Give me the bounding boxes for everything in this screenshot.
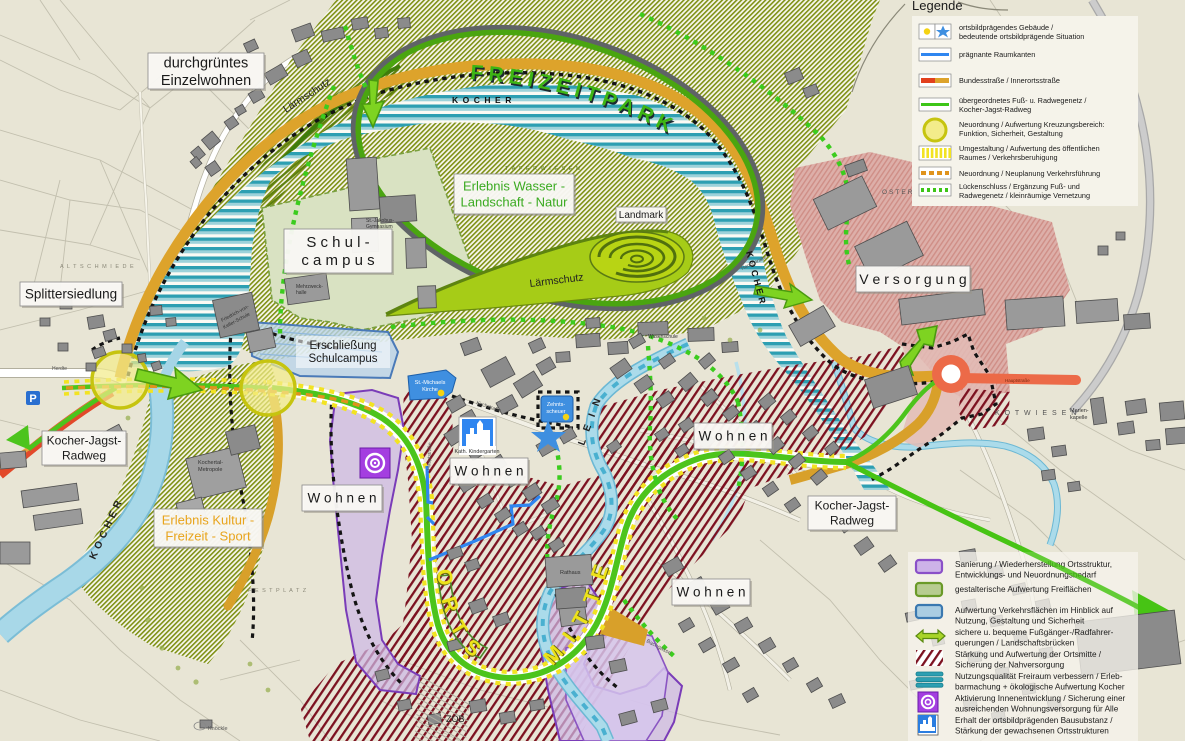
svg-text:St.-Michaels: St.-Michaels [415, 380, 446, 386]
svg-text:Knöckle: Knöckle [208, 726, 228, 732]
svg-text:Metropole: Metropole [198, 467, 222, 473]
svg-text:T Ä F E R W I E S E N: T Ä F E R W I E S E N [505, 165, 581, 172]
svg-text:Erlebnis Wasser -: Erlebnis Wasser - [463, 179, 565, 194]
svg-text:sichere u. bequeme Fußgänger-/: sichere u. bequeme Fußgänger-/Radfahrer- [955, 628, 1114, 637]
svg-text:S c h u l -: S c h u l - [306, 234, 369, 251]
svg-text:prägnante Raumkanten: prägnante Raumkanten [959, 50, 1035, 59]
svg-text:Legende: Legende [912, 0, 963, 13]
svg-text:Einzelwohnen: Einzelwohnen [161, 73, 251, 89]
svg-text:Lückenschluss / Ergänzung Fuß-: Lückenschluss / Ergänzung Fuß- und [959, 182, 1080, 191]
svg-text:Marien-: Marien- [1070, 408, 1089, 414]
svg-text:übergeordnetes Fuß- u. Radwege: übergeordnetes Fuß- u. Radwegenetz / [959, 96, 1087, 105]
svg-text:W o h n e n: W o h n e n [307, 491, 376, 506]
svg-text:barmachung + ökologische Aufwe: barmachung + ökologische Aufwertung Koch… [955, 682, 1125, 691]
svg-text:Umgestaltung / Aufwertung des: Umgestaltung / Aufwertung des öffentlich… [959, 144, 1100, 153]
svg-text:V e r s o r g u n g: V e r s o r g u n g [859, 271, 966, 287]
svg-text:Radwegenetz / kleinräumige Ver: Radwegenetz / kleinräumige Vernetzung [959, 191, 1090, 200]
svg-text:Aufwertung Verkehrsflächen im: Aufwertung Verkehrsflächen im Hinblick a… [955, 606, 1114, 615]
svg-text:c a m p u s: c a m p u s [301, 252, 374, 269]
svg-text:F E S T P L A T Z: F E S T P L A T Z [248, 588, 307, 594]
svg-text:Splittersiedlung: Splittersiedlung [25, 287, 117, 302]
svg-text:Hauptstraße: Hauptstraße [1005, 378, 1030, 383]
svg-text:Kocher-Jagst-Radweg: Kocher-Jagst-Radweg [959, 105, 1031, 114]
svg-text:Stärkung der gewachsenen Ortss: Stärkung der gewachsenen Ortsstrukturen [955, 726, 1109, 735]
svg-text:querungen / Landschaftsbrücken: querungen / Landschaftsbrücken [955, 638, 1075, 647]
svg-text:Raumes / Verkehrsberuhigung: Raumes / Verkehrsberuhigung [959, 153, 1058, 162]
svg-text:W o h n e n: W o h n e n [676, 585, 745, 600]
svg-text:Kocher-Jagst-: Kocher-Jagst- [47, 434, 122, 448]
svg-text:Wasenschule: Wasenschule [648, 334, 678, 340]
svg-text:W o h n e n: W o h n e n [698, 429, 767, 444]
svg-text:Stärkung und Aufwertung der O: Stärkung und Aufwertung der Ortsmitte / [955, 650, 1102, 659]
svg-text:Neuordnung / Aufwertung Kreuzu: Neuordnung / Aufwertung Kreuzungsbereich… [959, 120, 1105, 129]
svg-text:Bundesstraße / Innerortsstraße: Bundesstraße / Innerortsstraße [959, 76, 1060, 85]
svg-text:Kochertal-: Kochertal- [198, 460, 223, 466]
svg-text:Schulcampus: Schulcampus [308, 353, 377, 365]
svg-text:ortsbildprägendes Gebäude /: ortsbildprägendes Gebäude / [959, 23, 1054, 32]
svg-text:Landschaft - Natur: Landschaft - Natur [461, 195, 569, 210]
svg-text:halle: halle [296, 290, 307, 296]
svg-text:Neuordnung / Neuplanung Verke: Neuordnung / Neuplanung Verkehrsführung [959, 169, 1100, 178]
svg-text:A L T S C H M I E D E: A L T S C H M I E D E [60, 264, 135, 270]
svg-text:Aktivierung Innenentwicklung /: Aktivierung Innenentwicklung / Sicherung… [955, 694, 1125, 703]
svg-text:Kirche: Kirche [422, 387, 438, 393]
svg-text:Landmark: Landmark [619, 210, 664, 221]
svg-text:Nutzungsqualität Freiraum verb: Nutzungsqualität Freiraum verbessern / E… [955, 672, 1123, 681]
svg-text:Kath. Kindergarten: Kath. Kindergarten [455, 449, 500, 455]
svg-text:Kocher-Jagst-: Kocher-Jagst- [815, 499, 890, 513]
svg-text:W o h n e n: W o h n e n [454, 464, 523, 479]
svg-text:KOCHER: KOCHER [452, 95, 516, 105]
svg-text:Rathaus: Rathaus [560, 570, 581, 576]
svg-text:Erhalt der ortsbildprägenden B: Erhalt der ortsbildprägenden Bausubstanz… [955, 716, 1113, 725]
svg-text:P: P [29, 393, 36, 405]
svg-text:ausreichenden Wohnungsversorgu: ausreichenden Wohnungsversorgung für All… [955, 704, 1119, 713]
svg-text:Herdte: Herdte [52, 366, 67, 372]
svg-text:scheuer: scheuer [546, 409, 565, 415]
svg-text:gestalterische Aufwertung Frei: gestalterische Aufwertung Freiflächen [955, 585, 1092, 594]
svg-text:Funktion, Sicherheit, Gestaltu: Funktion, Sicherheit, Gestaltung [959, 129, 1063, 138]
svg-text:Sicherung der Nahversorgung: Sicherung der Nahversorgung [955, 660, 1065, 669]
svg-text:Nutzung, Gestaltung und Sicher: Nutzung, Gestaltung und Sicherheit [955, 616, 1085, 625]
svg-text:durchgrüntes: durchgrüntes [164, 55, 249, 71]
svg-text:kapelle: kapelle [1070, 415, 1087, 421]
svg-text:Radweg: Radweg [62, 449, 106, 463]
svg-text:ZOB: ZOB [446, 714, 465, 724]
svg-text:Erschließung: Erschließung [309, 340, 376, 352]
svg-text:K O T W I E S E N: K O T W I E S E N [995, 410, 1078, 417]
svg-text:Radweg: Radweg [830, 514, 874, 528]
svg-text:Erlebnis Kultur -: Erlebnis Kultur - [162, 513, 254, 528]
svg-text:Sanierung / Wiederherstellung: Sanierung / Wiederherstellung Ortsstrukt… [955, 560, 1112, 569]
svg-text:Freizeit - Sport: Freizeit - Sport [165, 529, 251, 544]
svg-text:bedeutende ortsbildprägende Si: bedeutende ortsbildprägende Situation [959, 32, 1084, 41]
svg-text:Zehnts-: Zehnts- [547, 402, 565, 408]
